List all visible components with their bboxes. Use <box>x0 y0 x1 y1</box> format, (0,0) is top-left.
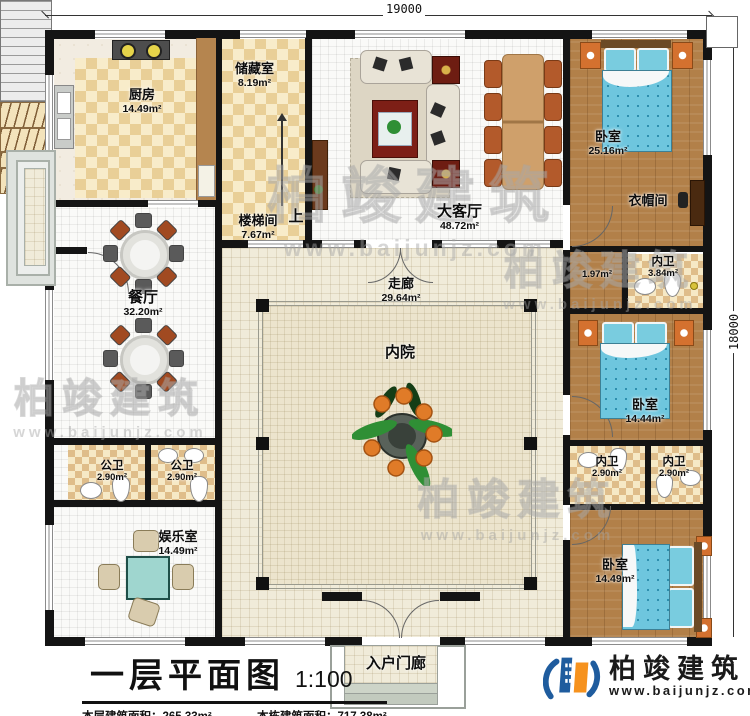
window <box>248 240 303 248</box>
wall-center-right-3 <box>563 435 570 505</box>
room-label-nook: 1.97m² <box>572 270 622 281</box>
bathroom-sink <box>634 278 656 295</box>
brand-url: www.baijunjz.com <box>609 683 750 698</box>
bathroom-sink <box>80 482 102 499</box>
chair <box>135 318 152 333</box>
floor-drain <box>690 282 698 290</box>
dimension-right-value: 18000 <box>727 311 741 353</box>
chair <box>484 159 502 187</box>
room-name: 内院 <box>368 344 432 361</box>
window <box>45 525 54 610</box>
dresser <box>690 180 705 226</box>
chair <box>544 126 562 154</box>
stat-value: 265.33m² <box>163 711 212 716</box>
chair <box>484 93 502 121</box>
column <box>256 577 269 590</box>
wall-vestibule-right <box>440 592 480 601</box>
stove-burner <box>146 43 162 59</box>
chair <box>484 60 502 88</box>
stair-arrow-line <box>281 120 283 206</box>
chair <box>544 93 562 121</box>
room-name: 卧室 <box>606 398 684 413</box>
wall-cloakroom-bottom <box>570 246 703 252</box>
kitchen-rug <box>75 58 203 198</box>
room-name: 大客厅 <box>412 203 507 220</box>
room-area: 2.90m² <box>646 469 702 480</box>
room-label-courtyard: 内院 <box>368 344 432 361</box>
room-label-recreation: 娱乐室 14.49m² <box>136 530 220 557</box>
mahjong-table <box>126 556 170 600</box>
room-label-bedroom-mid: 卧室 14.44m² <box>606 398 684 425</box>
window <box>703 330 712 430</box>
room-label-bedroom-bottom: 卧室 14.49m² <box>576 558 654 585</box>
chair <box>103 245 118 262</box>
window <box>95 30 165 39</box>
window <box>592 637 687 646</box>
wall-bedroom-mid-bottom <box>570 440 703 446</box>
sink-basin <box>57 92 71 114</box>
sink-basin <box>57 118 71 140</box>
round-dining-set <box>104 214 180 290</box>
window <box>355 30 465 39</box>
cushion <box>387 167 401 181</box>
room-label-bath-mid-right: 内卫 2.90m² <box>646 456 702 480</box>
wall-between-public-baths <box>145 443 151 504</box>
wall-vestibule-left <box>322 592 362 601</box>
room-name: 衣帽间 <box>608 194 688 209</box>
bed-headboard <box>694 542 702 632</box>
pillow <box>637 48 669 72</box>
window <box>240 30 306 39</box>
chair <box>98 564 120 590</box>
room-label-dining: 餐厅 32.20m² <box>98 289 188 318</box>
stove-burner <box>120 43 136 59</box>
room-area: 14.49m² <box>576 573 654 585</box>
chair <box>169 245 184 262</box>
room-area: 3.84m² <box>632 269 694 280</box>
room-label-bedroom-top: 卧室 25.16m² <box>568 130 648 157</box>
wall-center-right-4 <box>563 540 570 637</box>
room-area: 14.49m² <box>136 545 220 557</box>
window <box>442 240 497 248</box>
sofa <box>360 50 432 84</box>
nightstand <box>580 42 601 69</box>
chair <box>544 159 562 187</box>
room-name: 娱乐室 <box>136 530 220 545</box>
room-label-cloakroom: 衣帽间 <box>608 194 688 209</box>
room-label-corridor: 走廊 29.64m² <box>360 277 442 304</box>
window <box>85 637 185 646</box>
bed-headboard <box>601 40 671 48</box>
nightstand <box>674 320 694 346</box>
side-table <box>432 160 460 188</box>
room-area: 2.90m² <box>153 473 211 484</box>
window <box>465 637 545 646</box>
stat-label: 本栋建筑面积： <box>257 711 338 716</box>
side-terrace-pad <box>24 168 46 266</box>
stat-building-area: 本栋建筑面积：717.38m² <box>257 708 387 716</box>
room-label-storage: 储藏室 8.19m² <box>212 62 297 89</box>
room-label-bath-top: 内卫 3.84m² <box>632 256 694 280</box>
room-area: 2.90m² <box>83 473 141 484</box>
dimension-line-top <box>45 15 712 16</box>
chair <box>135 384 152 399</box>
stat-floor-area: 本层建筑面积：265.33m² <box>82 708 257 716</box>
room-name: 厨房 <box>97 88 187 103</box>
wall-center-right-2 <box>563 250 570 395</box>
room-name: 储藏室 <box>212 62 297 77</box>
room-area: 2.90m² <box>578 469 636 480</box>
room-name: 卧室 <box>568 130 648 145</box>
floor-plan: 19000 18000 <box>0 0 750 716</box>
stair-arrow-head <box>277 113 287 121</box>
room-area: 32.20m² <box>98 306 188 318</box>
window <box>245 637 325 646</box>
wall-nook-bath <box>622 252 628 308</box>
dimension-top-value: 19000 <box>383 2 425 16</box>
brand-logo-icon <box>543 648 601 706</box>
chair <box>544 60 562 88</box>
room-area: 25.16m² <box>568 145 648 157</box>
room-label-public-bath-2: 公卫 2.90m² <box>153 460 211 484</box>
stat-label: 本层建筑面积： <box>82 711 163 716</box>
stair-direction-label: 上 <box>284 208 308 225</box>
side-table <box>432 56 460 84</box>
pillow <box>635 322 667 345</box>
window <box>515 240 550 248</box>
tv-console <box>312 140 328 210</box>
room-area: 8.19m² <box>212 77 297 89</box>
plant-icon <box>387 120 401 134</box>
room-label-bath-mid-left: 内卫 2.90m² <box>578 456 636 480</box>
pillow <box>668 588 694 628</box>
stat-value: 717.38m² <box>338 711 387 716</box>
window <box>592 30 687 39</box>
chair <box>484 126 502 154</box>
wall-bath-top-bottom <box>570 308 703 314</box>
column <box>524 577 537 590</box>
courtyard-tree <box>352 382 452 486</box>
window <box>45 75 54 155</box>
window <box>45 290 54 380</box>
chair <box>172 564 194 590</box>
room-area: 1.97m² <box>572 270 622 281</box>
room-label-public-bath-1: 公卫 2.90m² <box>83 460 141 484</box>
nightstand <box>672 42 693 69</box>
chair <box>169 350 184 367</box>
room-label-living: 大客厅 48.72m² <box>412 203 507 232</box>
chair <box>135 213 152 228</box>
brand-logo-block: 柏竣建筑 www.baijunjz.com <box>543 648 750 706</box>
pass-through-window <box>148 200 198 207</box>
room-area: 29.64m² <box>360 292 442 304</box>
column <box>524 299 537 312</box>
wall-center-right-1 <box>563 38 570 205</box>
plan-scale: 1:100 <box>295 666 353 693</box>
living-door-opening <box>366 240 432 248</box>
nightstand <box>578 320 598 346</box>
plan-title-block: 一层平面图 1:100 本层建筑面积：265.33m² 本栋建筑面积：717.3… <box>82 648 387 716</box>
room-name: 餐厅 <box>98 289 188 306</box>
pillow <box>604 48 636 72</box>
window <box>703 60 712 155</box>
room-area: 14.49m² <box>97 103 187 115</box>
room-area: 14.44m² <box>606 413 684 425</box>
chair <box>103 350 118 367</box>
brand-name: 柏竣建筑 <box>609 656 750 683</box>
room-area: 7.67m² <box>212 229 304 241</box>
plan-title: 一层平面图 <box>90 648 285 697</box>
room-name: 卧室 <box>576 558 654 573</box>
wall-detail-box <box>706 16 738 48</box>
column <box>256 437 269 450</box>
room-area: 48.72m² <box>412 220 507 232</box>
dining-table-long <box>502 54 544 190</box>
kitchen-appliance <box>198 165 215 197</box>
pillow <box>602 322 634 345</box>
room-label-kitchen: 厨房 14.49m² <box>97 88 187 115</box>
round-dining-set <box>104 319 180 395</box>
column <box>256 299 269 312</box>
column <box>524 437 537 450</box>
room-name: 走廊 <box>360 277 442 292</box>
wall-dining-bottom <box>45 438 222 445</box>
window <box>322 240 354 248</box>
plant-icon <box>314 185 323 194</box>
pillow <box>668 546 694 586</box>
